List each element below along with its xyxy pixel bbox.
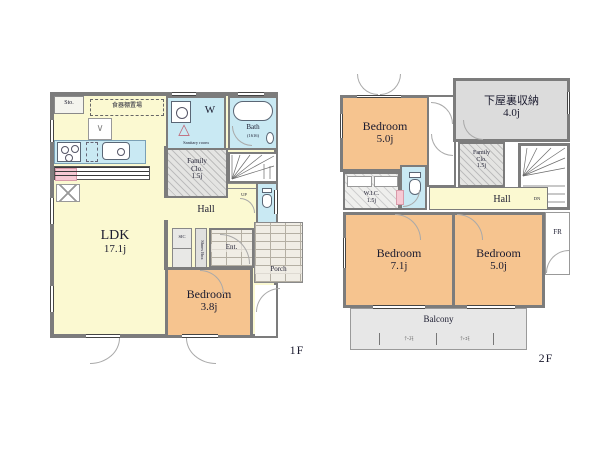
hall-label-1f: Hall xyxy=(178,204,234,215)
ldk-size: 17.1j xyxy=(68,243,162,255)
floor-label-1f: 1F xyxy=(284,344,310,357)
wall xyxy=(164,220,168,270)
dishwasher-icon xyxy=(86,142,98,162)
toilet-tank-icon xyxy=(262,188,272,193)
family-clo2-line1: Family xyxy=(460,150,503,157)
shoes-box-label: Shoes Box xyxy=(199,236,204,265)
floorplan-2f: Bedroom 5.0j 下屋裏収納 4.0j Family Clo. 1.5j xyxy=(337,72,599,372)
floor-label-2f: 2F xyxy=(533,352,559,365)
door-arc xyxy=(90,338,120,364)
balcony-mark-2: ﾃ+ｴﾓ xyxy=(449,337,482,342)
bedroom-2fb-size: 7.1j xyxy=(346,260,452,272)
window xyxy=(357,95,401,98)
hall-2f: Hall DN xyxy=(429,187,548,210)
tick xyxy=(379,333,380,345)
family-clo2-line2: Clo. xyxy=(460,157,503,164)
window xyxy=(238,92,264,96)
bedroom-2fb-name: Bedroom xyxy=(346,247,452,260)
sic-label: SIC xyxy=(175,235,189,240)
tick xyxy=(493,333,494,345)
balcony: Balcony ﾃｰｽﾓ ﾃ+ｴﾓ xyxy=(350,308,527,350)
wic-size: 1.5j xyxy=(345,198,398,205)
floor-hatch-icon xyxy=(56,184,80,202)
bedroom-2fa-name: Bedroom xyxy=(343,120,427,133)
counter-front xyxy=(54,166,150,180)
window xyxy=(172,92,196,96)
window xyxy=(373,305,425,309)
dn-label: DN xyxy=(530,197,544,202)
room-sanitary: W △ Sanitary room xyxy=(166,96,226,150)
window xyxy=(340,114,343,138)
wic-name: W.I.C. xyxy=(345,191,398,198)
porch: Porch xyxy=(254,222,303,283)
window xyxy=(274,190,278,214)
closet-shelf xyxy=(374,176,398,187)
window xyxy=(50,286,54,312)
ldk-name: LDK xyxy=(68,228,162,243)
room-storage: Sto. xyxy=(54,96,84,114)
up-label: UP xyxy=(237,193,252,198)
room-sic: SIC xyxy=(172,228,192,268)
door-arc xyxy=(357,74,378,95)
bathtub-icon xyxy=(233,101,273,121)
shoes-box: Shoes Box xyxy=(195,228,207,268)
room-family-closet-2f: Family Clo. 1.5j xyxy=(458,142,505,187)
hall-label-2f: Hall xyxy=(482,194,522,205)
stairs-1f xyxy=(228,152,278,183)
stair-foot xyxy=(228,183,256,193)
floorplan-canvas: Sto. 食器棚置場 R ∨ LDK xyxy=(0,0,600,450)
dish-shelf-label: 食器棚置場 xyxy=(91,103,163,110)
sink-icon xyxy=(102,142,130,160)
bedroom-2fc-size: 5.0j xyxy=(455,260,542,272)
porch-label: Porch xyxy=(255,266,302,274)
vanity-triangle-icon: △ xyxy=(174,122,194,139)
floorplan-1f: Sto. 食器棚置場 R ∨ LDK xyxy=(50,92,312,372)
family-clo-line3: 1.5j xyxy=(168,173,226,181)
stairs-1f-treads xyxy=(230,154,276,181)
storage-label: Sto. xyxy=(55,100,83,107)
window xyxy=(343,238,346,268)
door-arc xyxy=(380,74,401,95)
tick xyxy=(436,333,437,345)
window xyxy=(567,92,570,114)
toilet-tank-icon xyxy=(409,172,421,178)
stove-icon xyxy=(57,142,81,162)
washer-pan-icon xyxy=(171,101,191,123)
counter-stripes xyxy=(55,167,149,179)
room-wic: W.I.C. 1.5j xyxy=(343,172,400,210)
balcony-mark-1: ﾃｰｽﾓ xyxy=(393,337,426,342)
bedroom-2fa-size: 5.0j xyxy=(343,133,427,145)
washer-label: W xyxy=(200,104,220,116)
window xyxy=(50,198,54,224)
attic-size: 4.0j xyxy=(456,107,567,119)
window xyxy=(50,120,54,142)
family-clo2-line3: 1.5j xyxy=(460,163,503,170)
door-arc xyxy=(186,338,216,364)
room-bedroom-2f-a: Bedroom 5.0j xyxy=(340,95,430,172)
attic-name: 下屋裏収納 xyxy=(456,95,567,107)
room-bath: Bath (1616) xyxy=(228,96,278,150)
ldk-label: LDK 17.1j xyxy=(68,228,162,255)
balcony-label: Balcony xyxy=(351,315,526,325)
window xyxy=(467,305,515,309)
fr-label: FR xyxy=(546,229,569,237)
bedroom-2fc-name: Bedroom xyxy=(455,247,542,260)
bath-basin-icon xyxy=(266,132,274,144)
cabinet-icon: ∨ xyxy=(88,118,112,140)
bedroom-1f-size: 3.8j xyxy=(168,301,250,313)
room-family-closet-1f: Family Clo. 1.5j xyxy=(166,148,228,198)
sanitary-label: Sanitary room xyxy=(175,141,217,146)
toilet-bowl-icon xyxy=(262,194,272,208)
closet-shelf xyxy=(347,176,372,187)
dish-shelf-area: 食器棚置場 xyxy=(90,99,164,116)
